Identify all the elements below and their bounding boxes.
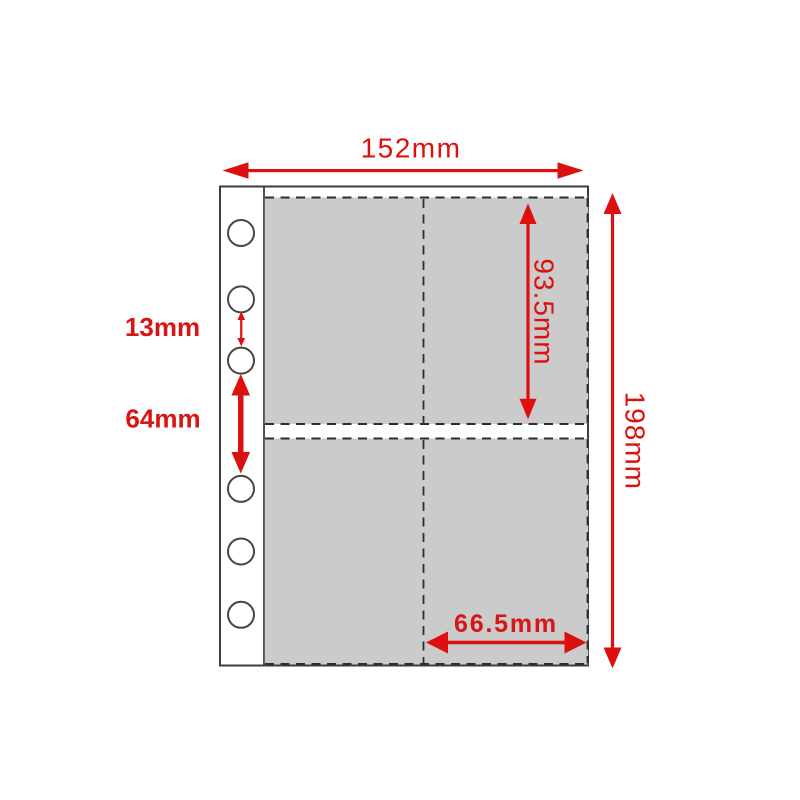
svg-text:13mm: 13mm bbox=[125, 312, 200, 342]
svg-text:198mm: 198mm bbox=[620, 392, 651, 490]
svg-text:64mm: 64mm bbox=[125, 404, 200, 434]
svg-text:152mm: 152mm bbox=[361, 133, 462, 164]
svg-text:93.5mm: 93.5mm bbox=[529, 258, 560, 365]
svg-text:66.5mm: 66.5mm bbox=[454, 610, 558, 638]
